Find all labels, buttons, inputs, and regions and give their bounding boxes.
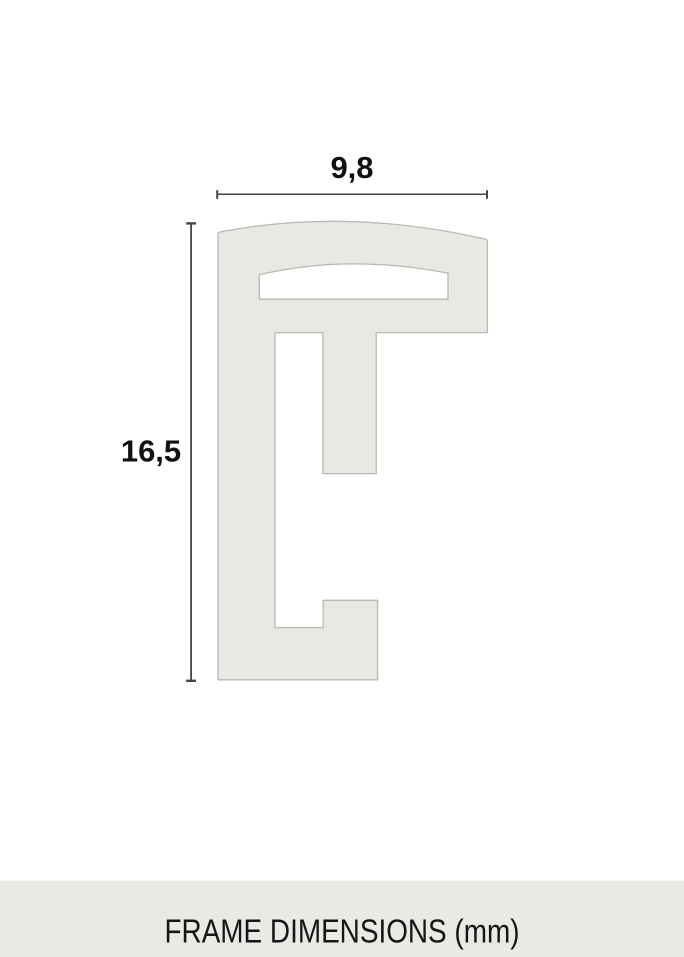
svg-text:FRAME DIMENSIONS (mm): FRAME DIMENSIONS (mm) [165,913,520,950]
svg-text:9,8: 9,8 [330,150,373,185]
svg-text:16,5: 16,5 [121,434,181,469]
